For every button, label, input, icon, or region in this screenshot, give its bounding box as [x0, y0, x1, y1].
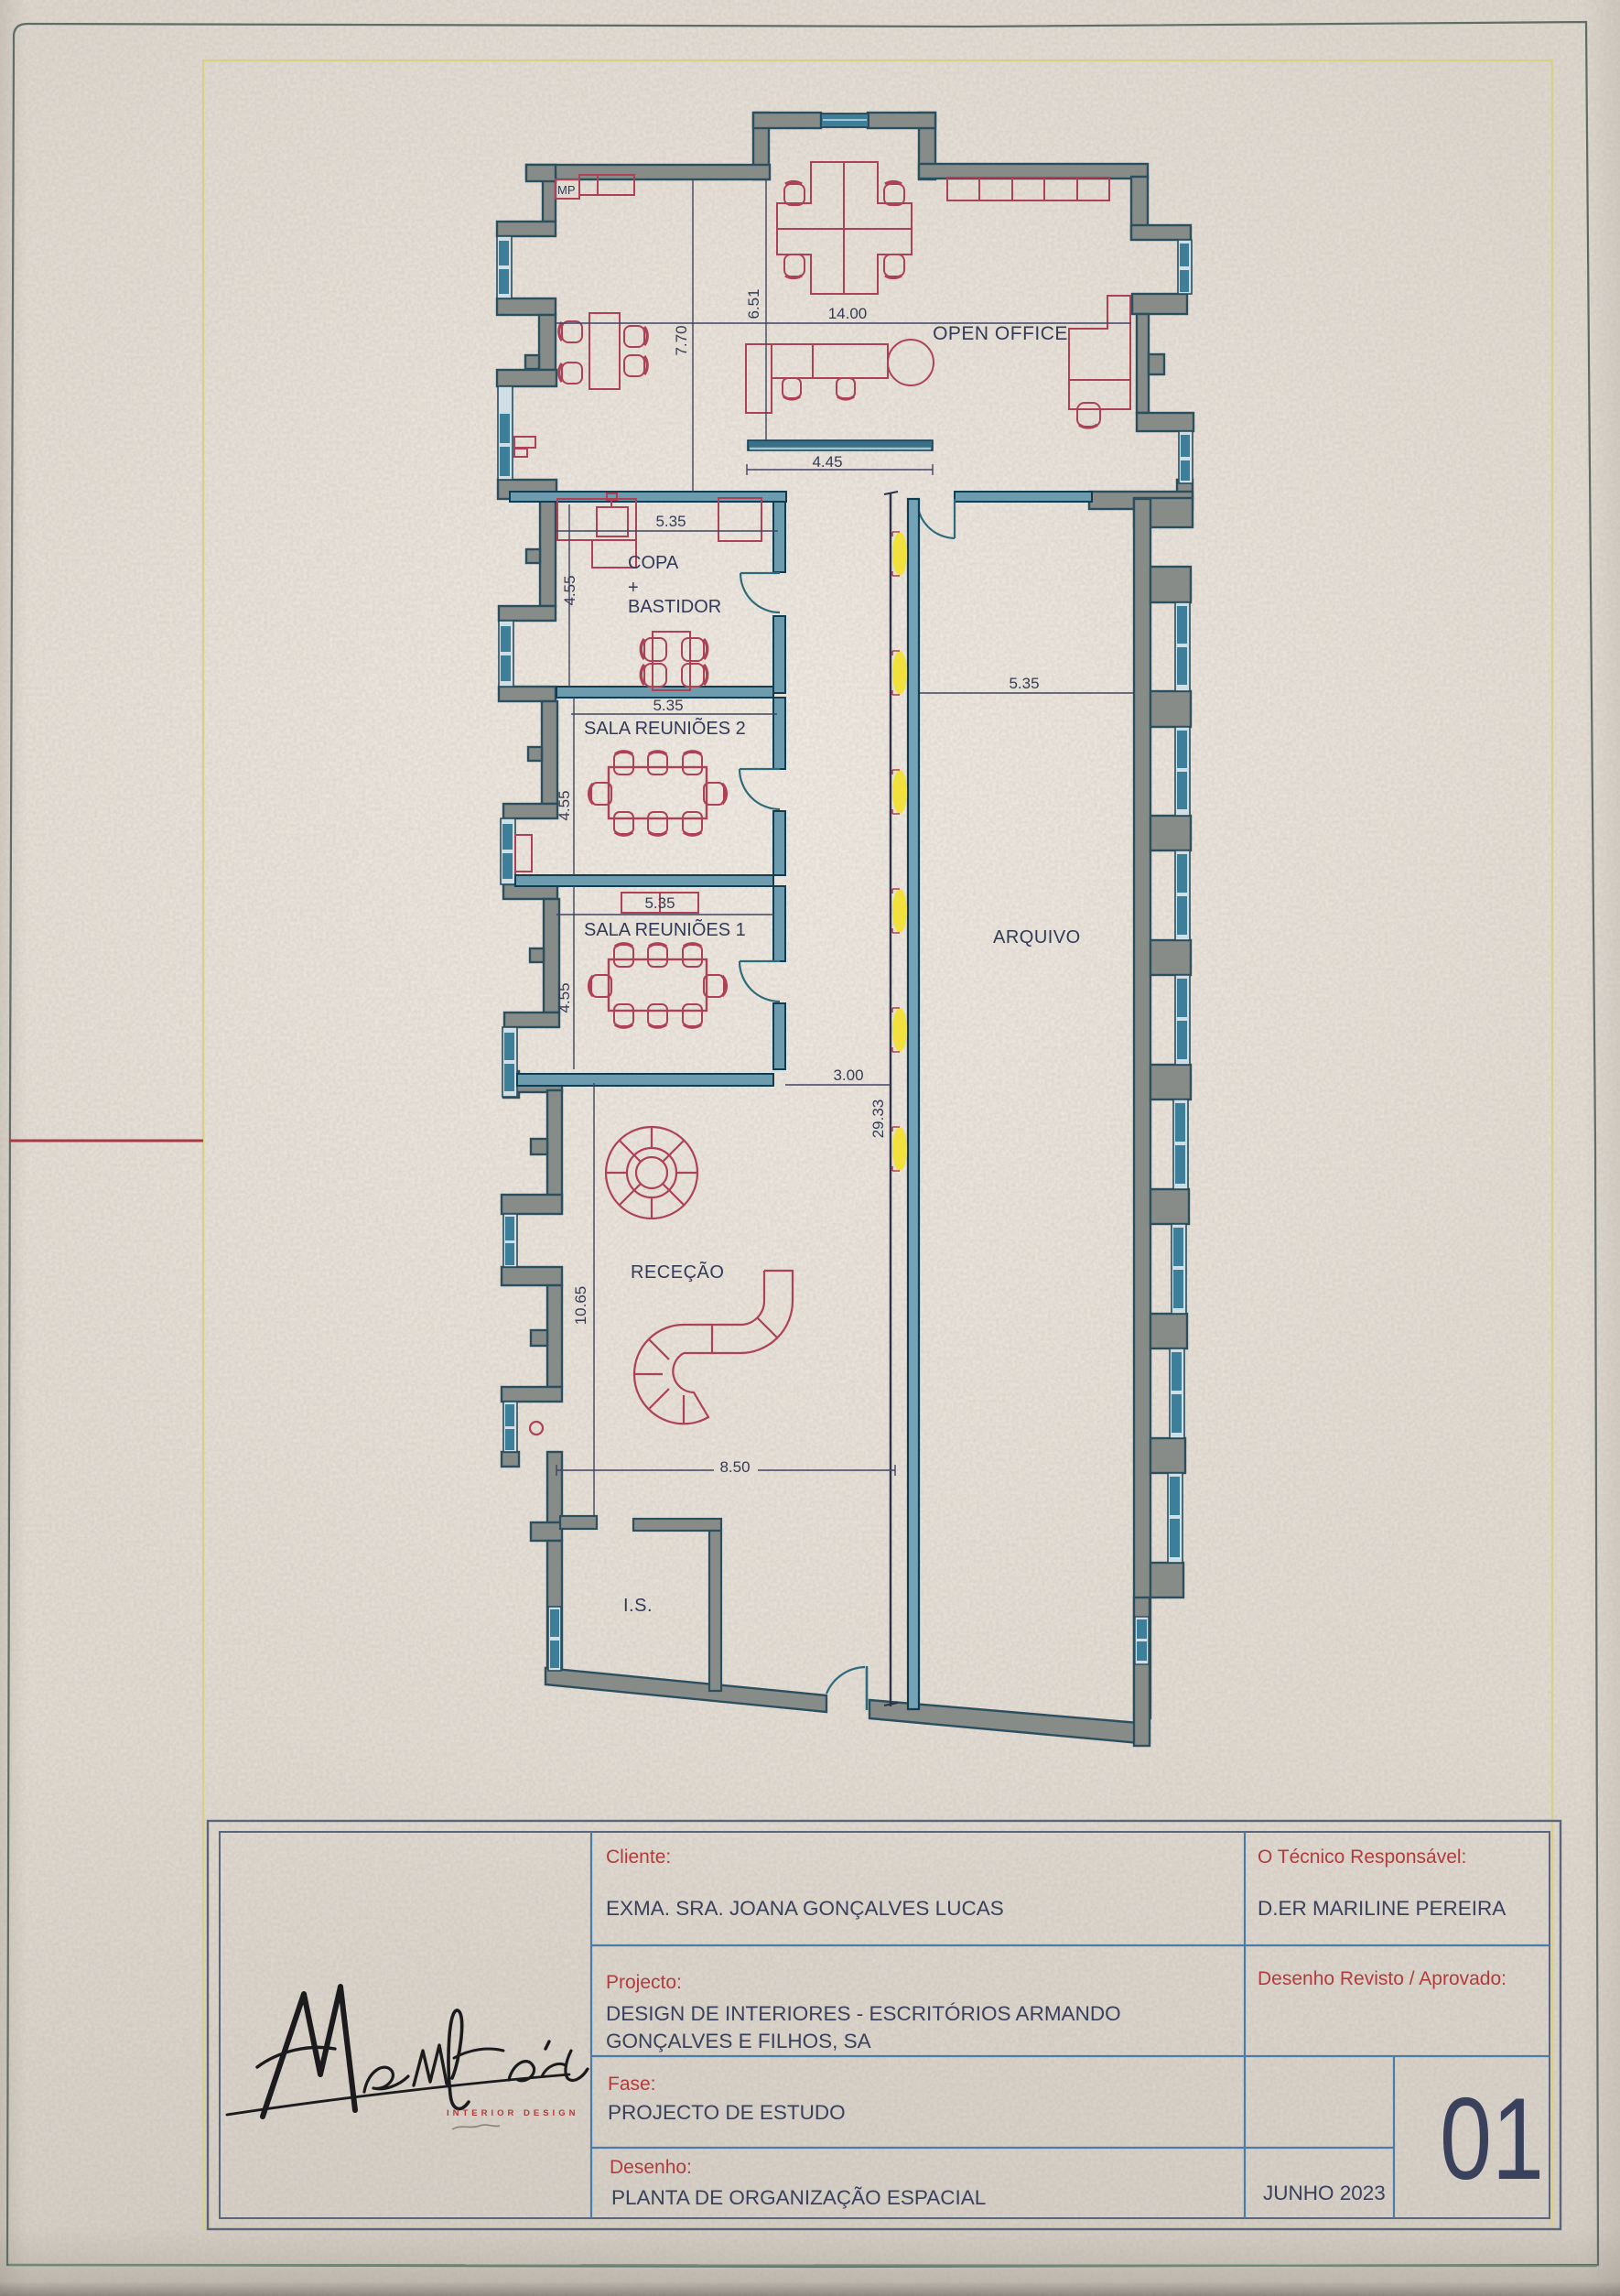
svg-text:+: + — [628, 578, 639, 598]
svg-text:4.55: 4.55 — [556, 982, 573, 1013]
svg-text:14.00: 14.00 — [828, 305, 868, 322]
svg-text:INTERIOR DESIGN: INTERIOR DESIGN — [447, 2108, 578, 2118]
svg-text:Desenho:: Desenho: — [610, 2157, 692, 2178]
svg-text:PROJECTO DE ESTUDO: PROJECTO DE ESTUDO — [608, 2101, 846, 2124]
svg-text:Projecto:: Projecto: — [606, 1972, 682, 1993]
svg-text:I.S.: I.S. — [623, 1596, 653, 1616]
svg-text:4.55: 4.55 — [561, 575, 578, 605]
svg-text:Fase:: Fase: — [608, 2074, 656, 2095]
svg-text:4.45: 4.45 — [812, 453, 842, 471]
svg-text:5.35: 5.35 — [655, 513, 686, 530]
svg-text:SALA REUNIÕES 2: SALA REUNIÕES 2 — [584, 717, 746, 739]
svg-text:5.35: 5.35 — [1009, 675, 1039, 692]
svg-text:Desenho Revisto / Aprovado:: Desenho Revisto / Aprovado: — [1258, 1968, 1507, 1989]
svg-text:3.00: 3.00 — [833, 1067, 863, 1084]
svg-text:EXMA. SRA. JOANA GONÇALVES LUC: EXMA. SRA. JOANA GONÇALVES LUCAS — [606, 1897, 1004, 1920]
svg-text:COPA: COPA — [628, 553, 679, 573]
svg-text:ARQUIVO: ARQUIVO — [993, 927, 1081, 948]
svg-text:OPEN OFFICE: OPEN OFFICE — [933, 323, 1068, 344]
svg-text:D.ER MARILINE PEREIRA: D.ER MARILINE PEREIRA — [1258, 1897, 1506, 1920]
svg-text:GONÇALVES E FILHOS, SA: GONÇALVES E FILHOS, SA — [606, 2030, 871, 2052]
svg-text:01: 01 — [1440, 2074, 1544, 2204]
svg-text:10.65: 10.65 — [572, 1286, 589, 1326]
svg-text:RECEÇÃO: RECEÇÃO — [631, 1261, 724, 1283]
svg-text:6.51: 6.51 — [745, 288, 762, 319]
svg-text:JUNHO 2023: JUNHO 2023 — [1263, 2182, 1386, 2204]
svg-text:SALA REUNIÕES 1: SALA REUNIÕES 1 — [584, 918, 746, 940]
svg-text:7.70: 7.70 — [673, 325, 690, 355]
svg-text:29.33: 29.33 — [869, 1099, 887, 1139]
svg-text:DESIGN DE INTERIORES - ESCRITÓ: DESIGN DE INTERIORES - ESCRITÓRIOS ARMAN… — [606, 2002, 1121, 2025]
svg-text:PLANTA DE ORGANIZAÇÃO ESPACIAL: PLANTA DE ORGANIZAÇÃO ESPACIAL — [611, 2186, 986, 2209]
svg-text:4.55: 4.55 — [556, 790, 573, 820]
svg-text:MP: MP — [557, 183, 576, 197]
svg-text:5.35: 5.35 — [653, 697, 683, 714]
svg-text:5.35: 5.35 — [644, 894, 675, 912]
svg-text:8.50: 8.50 — [719, 1458, 750, 1476]
svg-text:BASTIDOR: BASTIDOR — [628, 597, 721, 617]
svg-text:Cliente:: Cliente: — [606, 1847, 671, 1868]
svg-text:O Técnico Responsável:: O Técnico Responsável: — [1258, 1847, 1466, 1868]
